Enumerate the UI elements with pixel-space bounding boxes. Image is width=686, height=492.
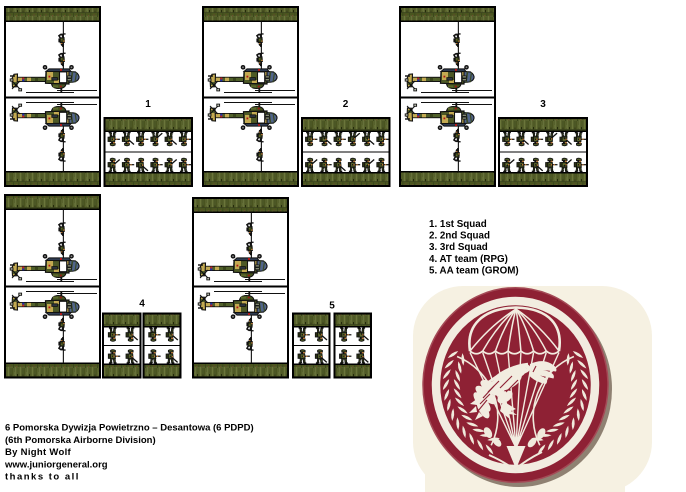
svg-text:5: 5 — [329, 301, 335, 312]
svg-text:3. 3rd Squad: 3. 3rd Squad — [429, 242, 488, 253]
svg-text:thanks to all: thanks to all — [5, 472, 80, 483]
svg-text:1. 1st Squad: 1. 1st Squad — [429, 219, 487, 230]
svg-text:5. AA team (GROM): 5. AA team (GROM) — [429, 265, 519, 276]
svg-text:By Night Wolf: By Night Wolf — [5, 447, 72, 458]
svg-text:2. 2nd Squad: 2. 2nd Squad — [429, 231, 490, 242]
svg-text:(6th Pomorska Airborne Divisio: (6th Pomorska Airborne Division) — [5, 435, 156, 446]
svg-text:1: 1 — [145, 99, 151, 110]
svg-text:6 Pomorska Dywizja Powietrzno: 6 Pomorska Dywizja Powietrzno – Desantow… — [5, 423, 254, 434]
svg-text:4. AT team (RPG): 4. AT team (RPG) — [429, 254, 508, 265]
svg-text:3: 3 — [540, 99, 546, 110]
svg-text:4: 4 — [139, 299, 145, 310]
svg-text:2: 2 — [343, 99, 349, 110]
svg-text:www.juniorgeneral.org: www.juniorgeneral.org — [4, 459, 108, 470]
